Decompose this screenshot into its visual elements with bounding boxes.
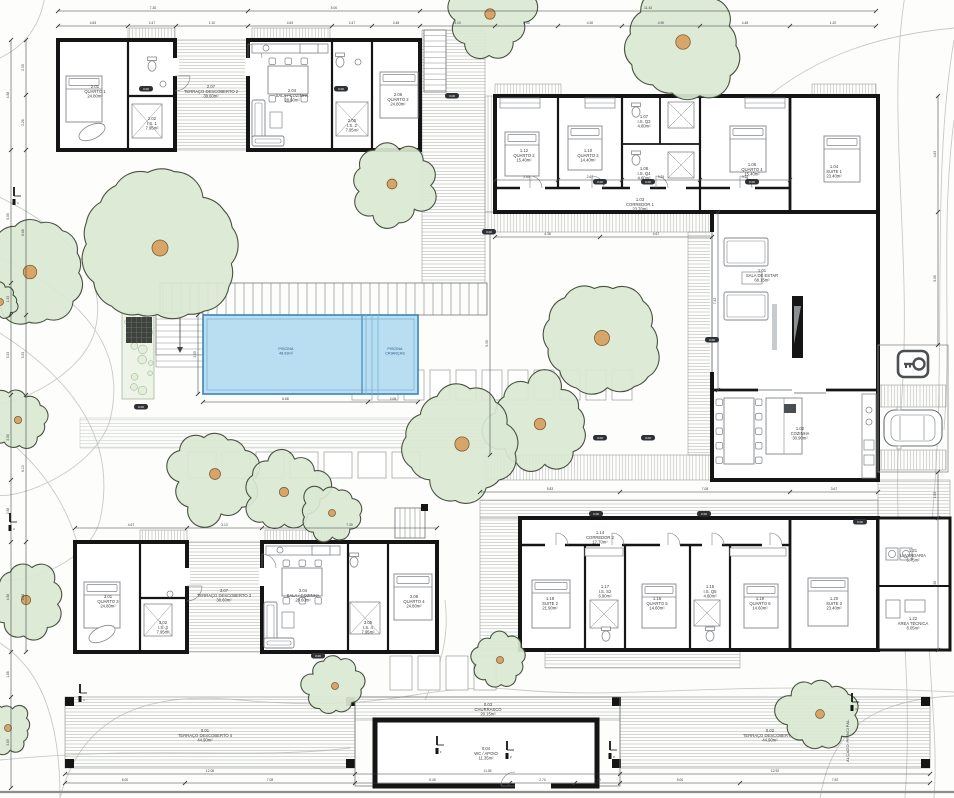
mirror — [897, 446, 901, 449]
ellipse — [602, 631, 610, 641]
dimension-chain-court1: 4.384.67 — [493, 232, 714, 239]
elevation-value: 0.00 — [597, 180, 603, 184]
door-opening — [630, 186, 650, 190]
sink — [160, 81, 166, 87]
section-marker: 3' — [609, 741, 618, 759]
chair — [756, 443, 763, 450]
rect — [851, 705, 854, 711]
elevation-value: 0.00 — [593, 512, 599, 516]
door-opening — [520, 186, 545, 190]
chair — [285, 58, 292, 65]
toilet — [148, 57, 157, 71]
tree-canopy — [0, 705, 30, 755]
elevation-marker: 0.00 — [589, 511, 603, 517]
dim-label: 4.48 — [742, 21, 749, 25]
rect — [264, 602, 277, 642]
chair — [269, 58, 276, 65]
deck-hatch — [480, 500, 878, 518]
stairs — [395, 504, 428, 538]
tree-trunk — [152, 240, 168, 256]
dim-label: 6.88 — [282, 397, 289, 401]
elevation-marker: 0.00 — [139, 86, 153, 92]
mirror — [897, 407, 901, 410]
toilet — [632, 151, 641, 165]
dim-label: 4.58 — [6, 594, 10, 601]
tree-trunk — [534, 418, 545, 429]
elevation-marker: 0.00 — [745, 179, 759, 185]
tree-canopy — [624, 0, 739, 100]
elevation-marker: 0.00 — [853, 519, 867, 525]
terrace-post — [921, 759, 930, 768]
oven — [864, 440, 874, 450]
rect — [148, 57, 157, 61]
dim-label: 2.47 — [349, 21, 356, 25]
toilet — [350, 553, 359, 567]
shower — [668, 102, 694, 128]
dim-label: 3.30 — [193, 351, 197, 358]
rect — [632, 151, 641, 155]
elevation-marker: 0.00 — [134, 404, 148, 410]
rect — [886, 548, 898, 560]
door-opening — [173, 58, 179, 76]
media-unit — [772, 304, 777, 350]
elevation-value: 0.00 — [597, 436, 603, 440]
chair — [756, 428, 763, 435]
dim-label: 6.45 — [429, 778, 436, 782]
dim-label: 5.00 — [331, 6, 338, 10]
door-opening — [515, 783, 551, 789]
terrace-post — [65, 697, 74, 706]
tree-trunk — [387, 179, 397, 189]
elevation-value: 0.00 — [857, 520, 863, 524]
toilet — [336, 53, 345, 67]
dim-label: 1.88 — [6, 671, 10, 678]
plant — [138, 386, 147, 395]
paver-step — [418, 656, 440, 690]
deck-hatch — [480, 518, 520, 650]
dim-label: 5.55 — [933, 275, 937, 282]
contour-line — [0, 0, 45, 60]
rect — [436, 748, 439, 754]
dimension-chain-left2: 2.302.286.883.336.134.58 — [21, 38, 28, 654]
dim-label: 4.90 — [658, 21, 665, 25]
shower — [590, 600, 618, 628]
rect — [66, 76, 102, 122]
stove — [300, 44, 318, 53]
plant — [138, 355, 147, 364]
terrace-post — [921, 697, 930, 706]
stairs — [424, 30, 446, 92]
rect — [350, 553, 359, 557]
elevation-value: 0.00 — [645, 180, 651, 184]
site-plan: 2.01QUARTO 124.80m²2.02I.S. 17.95m²2.04S… — [0, 0, 954, 798]
dim-label: 1.92 — [933, 492, 937, 499]
chair — [283, 560, 290, 567]
section-label: 1 — [17, 201, 19, 205]
sink — [167, 591, 173, 597]
dim-label: 5.83 — [547, 487, 554, 491]
dim-label: 4.83 — [933, 151, 937, 158]
tree-trunk — [5, 725, 12, 732]
dim-label: 3.80 — [6, 739, 10, 746]
stove — [312, 546, 330, 555]
section-label: 3' — [613, 755, 616, 759]
dim-label: 1.10 — [209, 21, 216, 25]
stairs — [156, 313, 203, 355]
dim-label: 11.43 — [644, 6, 652, 10]
plant — [131, 373, 138, 380]
dim-label: 2.28 — [21, 119, 25, 126]
washing-machine — [886, 548, 898, 560]
tree-canopy — [0, 564, 62, 640]
paver-step — [390, 656, 412, 690]
elevation-marker: 0.00 — [334, 86, 348, 92]
dim-label: 3.13 — [221, 523, 228, 527]
deck-hatch — [880, 450, 946, 470]
dim-label: 7.08 — [702, 487, 709, 491]
tree-trunk — [328, 509, 335, 516]
rect — [602, 627, 611, 631]
dim-label: 3.33 — [6, 352, 10, 359]
dimension-chain-mid1: 5.837.083.67 — [478, 487, 880, 494]
sink — [277, 547, 283, 553]
tree-trunk — [455, 437, 469, 451]
dim-label: 9.30 — [485, 340, 489, 347]
rect — [79, 696, 82, 702]
toilet — [602, 627, 611, 641]
ellipse — [350, 557, 358, 567]
dim-label: 2.63 — [523, 175, 530, 179]
section-marker: 2 — [9, 513, 18, 531]
tree-trunk — [23, 265, 37, 279]
rect — [424, 30, 446, 92]
elevation-marker: 0.00 — [482, 229, 496, 235]
dim-label: 3.50 — [523, 21, 530, 25]
door-opening — [245, 58, 251, 76]
chair — [269, 96, 276, 103]
chair — [756, 414, 763, 421]
rect — [724, 398, 754, 464]
dimension-chain-right1: 4.835.55 — [933, 94, 940, 347]
deck-hatch — [878, 480, 950, 518]
dim-label: 11.05 — [483, 769, 491, 773]
door-opening — [730, 186, 755, 190]
dim-label: 4.10 — [454, 21, 461, 25]
plant — [138, 345, 147, 354]
elevation-value: 0.00 — [645, 436, 651, 440]
door-opening — [184, 568, 190, 586]
sofa — [252, 100, 265, 140]
chair — [756, 399, 763, 406]
cooktop — [784, 404, 796, 413]
chair — [716, 443, 723, 450]
ellipse — [148, 61, 156, 71]
tech-equipment — [905, 600, 925, 612]
dim-label: 2.70 — [539, 778, 546, 782]
dim-label: 4.58 — [21, 594, 25, 601]
dim-label: 7.92 — [832, 778, 839, 782]
elevation-value: 0.00 — [338, 87, 344, 91]
sofa — [252, 136, 284, 146]
ellipse — [706, 631, 714, 641]
chair — [716, 428, 723, 435]
dim-label: 4.58 — [6, 92, 10, 99]
dim-label: 2.67 — [587, 175, 594, 179]
tree-trunk — [0, 299, 4, 306]
elevation-marker: 0.00 — [311, 653, 325, 659]
elevation-note: ALÇADO PRINCIPAL — [846, 719, 850, 762]
fridge — [864, 455, 874, 465]
dim-label: 12.08 — [206, 769, 214, 773]
wardrobe — [730, 548, 786, 556]
elevation-marker: 0.00 — [593, 435, 607, 441]
sofa — [724, 238, 768, 266]
dim-label: 3.55 — [6, 434, 10, 441]
ellipse — [632, 155, 640, 165]
coffee-table — [282, 612, 294, 628]
dim-label: 4.63 — [90, 21, 97, 25]
rect — [724, 292, 768, 320]
ellipse — [632, 107, 640, 117]
sofa — [724, 292, 768, 320]
plant — [131, 343, 138, 350]
rect — [632, 103, 641, 107]
chair — [716, 399, 723, 406]
dim-label: 7.30 — [346, 523, 353, 527]
car — [884, 407, 942, 449]
stair-post — [421, 504, 428, 511]
terrace-post — [65, 759, 74, 768]
deck-hatch — [880, 385, 946, 407]
deck-hatch — [485, 212, 712, 232]
contour-line — [944, 120, 954, 430]
dim-label: 2.08 — [390, 397, 397, 401]
elevation-marker: 0.00 — [445, 93, 459, 99]
sofa — [264, 638, 294, 648]
elevation-value: 0.00 — [749, 180, 755, 184]
coffee-table — [270, 112, 282, 128]
deck-hatch — [688, 232, 712, 455]
dim-label: 4.63 — [287, 21, 294, 25]
dim-label: 3.48 — [393, 21, 400, 25]
rect — [609, 753, 612, 759]
rect — [506, 753, 509, 759]
paver-step — [446, 656, 468, 690]
plan-svg: 2.01QUARTO 124.80m²2.02I.S. 17.95m²2.04S… — [0, 0, 954, 798]
chair — [716, 457, 723, 464]
dim-label: 1.20 — [830, 21, 837, 25]
dim-label: 7.42 — [713, 298, 717, 305]
elevation-marker: 0.00 — [697, 511, 711, 517]
tree-trunk — [210, 469, 221, 480]
pool-label-kids: PISCINACRIANÇAS — [385, 347, 405, 355]
dim-label: 1.33 — [6, 296, 10, 303]
fireplace — [792, 296, 803, 358]
terrace-post — [346, 759, 355, 768]
section-label: 2 — [13, 527, 15, 531]
rect — [336, 53, 345, 57]
chair — [756, 457, 763, 464]
tree-trunk — [594, 330, 609, 345]
dim-label: 3.33 — [21, 352, 25, 359]
dim-label: 3.67 — [831, 487, 838, 491]
elevation-marker: 0.00 — [641, 435, 655, 441]
sink — [866, 407, 872, 413]
dim-label: 4.30 — [587, 21, 594, 25]
tree-trunk — [14, 416, 21, 423]
dim-label: 5.55 — [6, 213, 10, 220]
wardrobe — [585, 548, 623, 556]
elevation-value: 0.00 — [315, 654, 321, 658]
shower — [668, 152, 694, 178]
sink — [355, 59, 361, 65]
dim-label: 4.67 — [653, 232, 660, 236]
chair — [315, 598, 322, 605]
sofa — [264, 602, 277, 642]
rect — [724, 238, 768, 266]
dim-label: 5.00 — [122, 778, 129, 782]
dim-label: 5.50 — [933, 581, 937, 588]
dim-label: 3.75 — [742, 175, 749, 179]
dim-label: 6.88 — [21, 229, 25, 236]
sink — [866, 419, 872, 425]
tree-trunk — [485, 9, 495, 19]
bed — [66, 76, 102, 122]
elevation-value: 0.00 — [709, 338, 715, 342]
deck-hatch — [545, 650, 740, 668]
key-icon — [898, 351, 928, 377]
paver — [324, 452, 352, 478]
dim-label: 7.30 — [150, 6, 157, 10]
elevation-value: 0.00 — [449, 94, 455, 98]
rect — [13, 199, 16, 205]
dim-label: 4.67 — [128, 523, 135, 527]
dim-label: 1.88 — [594, 778, 601, 782]
pool-label-main: PISCINA48.93m² — [278, 347, 294, 355]
rect — [252, 100, 265, 140]
chair — [299, 560, 306, 567]
shower — [694, 600, 720, 626]
chair — [315, 560, 322, 567]
elevation-value: 0.00 — [138, 405, 144, 409]
toilet — [706, 627, 715, 641]
elevation-value: 0.00 — [701, 512, 707, 516]
dim-label: 7.08 — [267, 778, 274, 782]
door-opening — [666, 186, 686, 190]
elevation-value: 0.00 — [486, 230, 492, 234]
dim-label: 2.47 — [149, 21, 156, 25]
plant — [148, 371, 153, 376]
rect — [126, 317, 152, 343]
plant — [131, 384, 138, 391]
tree-trunk — [331, 682, 338, 689]
rect — [264, 638, 294, 648]
tree-trunk — [279, 487, 288, 496]
rect — [252, 136, 284, 146]
tree-trunk — [816, 710, 825, 719]
dim-label: 5.00 — [677, 778, 684, 782]
chair — [301, 58, 308, 65]
sink — [263, 45, 269, 51]
elevation-marker: 0.00 — [705, 337, 719, 343]
dim-label: 3.25 — [658, 175, 665, 179]
dim-label: 2.30 — [21, 64, 25, 71]
outdoor-shower-pad — [126, 317, 152, 343]
paver — [358, 452, 386, 478]
elevation-marker: 0.00 — [593, 179, 607, 185]
tree-trunk — [497, 657, 504, 664]
rect — [706, 627, 715, 631]
dim-label: 4.38 — [544, 232, 551, 236]
rect — [9, 525, 12, 531]
elevation-value: 0.00 — [143, 87, 149, 91]
elevation-marker: 0.00 — [641, 179, 655, 185]
dim-label: 6.13 — [21, 465, 25, 472]
chair — [283, 598, 290, 605]
section-marker: 1 — [13, 187, 22, 205]
ellipse — [336, 57, 344, 67]
plant — [148, 361, 153, 366]
door-opening — [259, 568, 265, 586]
door-opening — [580, 186, 602, 190]
tree-trunk — [676, 35, 691, 50]
dim-label: 12.92 — [771, 769, 779, 773]
chair — [716, 414, 723, 421]
dimension-chain-blw_top: 4.673.137.30 — [73, 523, 439, 530]
tech-equipment — [886, 600, 900, 618]
